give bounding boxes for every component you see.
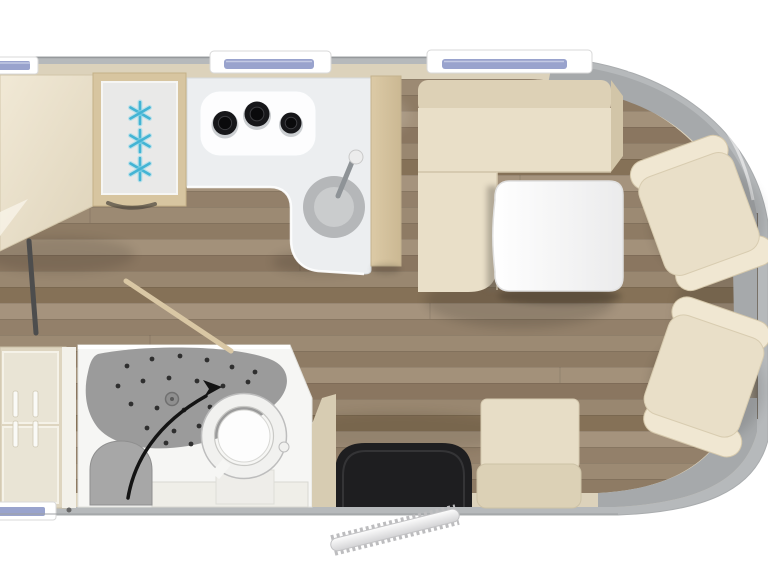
shower-dot bbox=[172, 429, 177, 434]
dinette-chaise bbox=[418, 172, 497, 292]
bench-backrest bbox=[477, 464, 581, 508]
wardrobe-drawer-top bbox=[3, 352, 58, 423]
wardrobe-side-wall bbox=[62, 347, 76, 508]
dining-table bbox=[493, 181, 623, 291]
plank-gap-line bbox=[0, 287, 768, 288]
entry-side-bench bbox=[477, 399, 581, 508]
window-rear-top-left bbox=[0, 57, 38, 74]
wardrobe bbox=[0, 347, 76, 508]
wardrobe-drawer-bottom bbox=[3, 427, 58, 503]
shower-dot bbox=[167, 376, 172, 381]
shower-dot bbox=[197, 424, 202, 429]
shower-dot bbox=[205, 358, 210, 363]
window-kitchen bbox=[210, 51, 331, 73]
kitchen-tall-cabinet bbox=[371, 76, 401, 266]
hob-burner-center bbox=[285, 117, 297, 129]
floor-plank bbox=[0, 287, 768, 303]
dinette-end-panel bbox=[611, 80, 623, 172]
plank-gap-line bbox=[0, 335, 768, 336]
bathroom bbox=[78, 345, 336, 507]
floor-plank bbox=[0, 303, 768, 319]
floor-plan-canvas bbox=[0, 0, 768, 576]
shower-dot bbox=[116, 384, 121, 389]
shower-stool bbox=[90, 441, 152, 505]
hob-burner-center bbox=[218, 116, 231, 129]
shower-dot bbox=[230, 365, 235, 370]
shower-dot bbox=[155, 406, 160, 411]
cabinet-shadow bbox=[371, 264, 401, 274]
window-dinette bbox=[427, 50, 592, 73]
window-glass bbox=[224, 59, 314, 69]
shower-dot bbox=[189, 442, 194, 447]
shower-dot bbox=[150, 357, 155, 362]
floor-plank bbox=[0, 319, 768, 335]
shower-dot bbox=[253, 370, 258, 375]
plank-gap-line bbox=[0, 303, 768, 304]
shower-dot bbox=[221, 384, 226, 389]
plank-gap-line bbox=[0, 319, 768, 320]
floor-plan-screenshot bbox=[0, 0, 768, 576]
shower-drain-center bbox=[170, 397, 174, 401]
shower-dot bbox=[141, 379, 146, 384]
hob-burner-center bbox=[250, 107, 264, 121]
bench-seat bbox=[481, 399, 579, 469]
faucet-knob bbox=[349, 150, 363, 164]
shower-dot bbox=[145, 426, 150, 431]
fridge bbox=[93, 73, 186, 208]
shower-dot bbox=[125, 364, 130, 369]
toilet-bowl bbox=[218, 410, 270, 462]
dinette-seat bbox=[418, 108, 611, 172]
shower-dot bbox=[178, 354, 183, 359]
window-glass bbox=[442, 59, 567, 69]
shower-dot bbox=[195, 379, 200, 384]
shower-dot bbox=[129, 402, 134, 407]
sink-basin-inner bbox=[314, 187, 354, 227]
shower-dot bbox=[246, 380, 251, 385]
window-glass bbox=[0, 507, 45, 516]
toilet-hinge bbox=[279, 442, 289, 452]
shower-dot bbox=[164, 441, 169, 446]
window-latch-dot bbox=[67, 508, 72, 513]
